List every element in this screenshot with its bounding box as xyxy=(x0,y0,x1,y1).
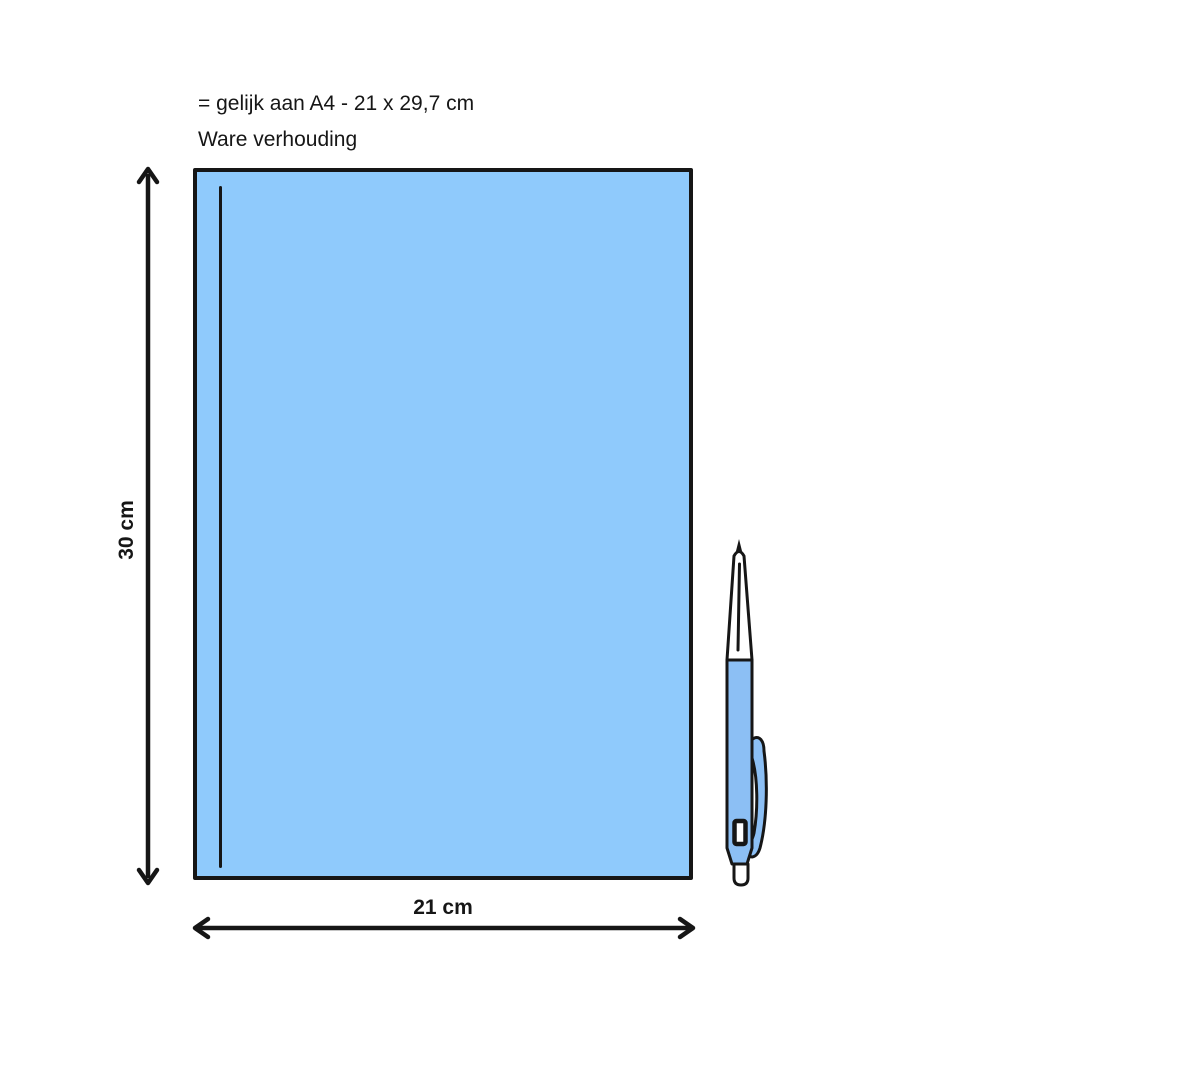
pen-push-button xyxy=(734,864,748,885)
double-arrow-vertical-icon xyxy=(139,169,157,883)
size-comparison-diagram: = gelijk aan A4 - 21 x 29,7 cm Ware verh… xyxy=(0,0,1200,1066)
pen-hole xyxy=(735,821,746,844)
pen-refill-line xyxy=(738,564,740,650)
height-dimension-label: 30 cm xyxy=(115,500,139,560)
paper-sheet xyxy=(193,168,693,880)
ballpoint-pen-illustration xyxy=(718,530,782,890)
width-dimension-label: 21 cm xyxy=(393,896,493,920)
double-arrow-horizontal-icon xyxy=(195,919,693,937)
paper-margin-line xyxy=(219,186,222,868)
true-proportion-caption: Ware verhouding xyxy=(198,128,357,152)
equivalence-caption: = gelijk aan A4 - 21 x 29,7 cm xyxy=(198,92,474,116)
